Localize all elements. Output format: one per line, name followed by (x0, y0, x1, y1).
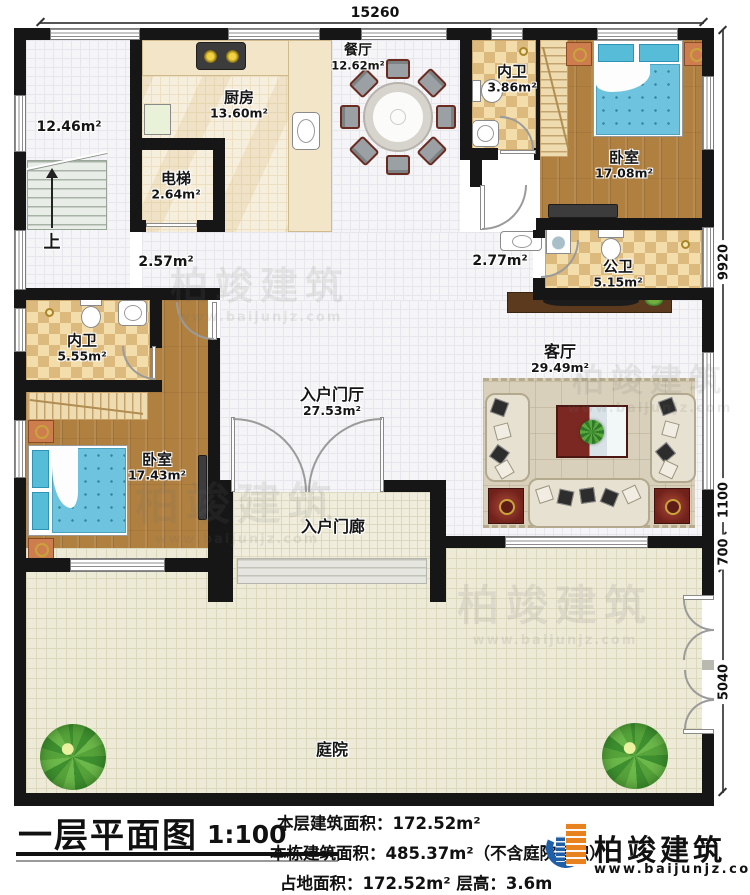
room-label-public-bath: 公卫 5.15m² (593, 259, 642, 290)
window (597, 28, 678, 40)
logo-building-icon (556, 836, 565, 862)
sofa-pillow (557, 489, 575, 507)
bath-sink-icon (472, 120, 499, 147)
side-table-decor (499, 499, 515, 515)
stair-arrow (51, 175, 53, 228)
room-name: 入户门厅 (300, 386, 364, 404)
sink-basin (297, 119, 315, 143)
area-info-line1: 本层建筑面积：172.52m² (277, 810, 481, 834)
window (702, 352, 714, 490)
dimension-right-value: 1100 (717, 478, 732, 522)
room-name: 公卫 (593, 259, 642, 276)
burner-icon (226, 50, 239, 63)
window (14, 230, 26, 290)
dimension-line-top (40, 22, 704, 24)
dining-chair (386, 59, 410, 79)
side-table-decor (665, 499, 681, 515)
room-label-bedroom1: 卧室 17.08m² (595, 150, 653, 181)
basin (477, 125, 494, 142)
room-label-ensuite2: 内卫 5.55m² (57, 333, 106, 364)
wall (536, 218, 702, 230)
basin (124, 305, 142, 321)
dimension-right-value: 5040 (717, 660, 732, 704)
wall (446, 536, 505, 548)
light-fixture-icon (519, 47, 528, 56)
wall (130, 40, 142, 232)
stair-up-label: 上 (44, 233, 61, 252)
wall (150, 300, 162, 348)
bed-pillow (598, 44, 634, 62)
room-name: 庭院 (316, 741, 348, 759)
room-label-porch: 入户门廊 (301, 518, 365, 536)
nightstand (28, 420, 54, 443)
wall (536, 40, 540, 158)
window (228, 28, 320, 40)
nightstand-decor (35, 425, 49, 439)
door-swing-arc (482, 185, 527, 230)
area-info-line3: 占地面积：172.52m² 层高：3.6m (280, 870, 552, 894)
room-name: 入户门廊 (301, 518, 365, 536)
nightstand (566, 42, 592, 66)
room-label-kitchen: 厨房 13.60m² (210, 90, 268, 121)
wall (702, 548, 714, 597)
room-area: 12.46m² (36, 120, 101, 136)
wall (14, 793, 714, 806)
window (14, 95, 26, 152)
kitchen-sink (292, 112, 320, 150)
room-name: 客厅 (531, 343, 589, 361)
wall (197, 220, 225, 232)
tv-panel-bedroom2 (198, 455, 207, 520)
room-area: 17.43m² (128, 468, 186, 482)
window (702, 227, 714, 288)
bed-pillow (32, 492, 49, 530)
door-leaf (500, 150, 536, 154)
window (14, 308, 26, 352)
window (50, 28, 140, 40)
hall-area-label: 2.57m² (138, 255, 193, 271)
nightstand-decor (573, 48, 587, 62)
room-name: 餐厅 (331, 44, 384, 60)
bed-pillow (639, 44, 679, 62)
room-name: 卧室 (128, 452, 186, 469)
wall (533, 288, 714, 300)
stair-arrow-head (46, 168, 58, 178)
tv-stand-bedroom1 (548, 204, 618, 218)
room-area: 2.77m² (472, 254, 527, 270)
sofa-pillow (579, 487, 596, 504)
room-label-living: 客厅 29.49m² (531, 343, 589, 375)
dimension-right-value: 9920 (717, 240, 732, 284)
dining-chair (386, 155, 410, 175)
window (702, 76, 714, 150)
dimension-tick (699, 17, 708, 26)
logo-site: www.baijunjz.com (594, 862, 750, 877)
room-label-foyer: 入户门厅 27.53m² (300, 386, 364, 418)
room-name: 厨房 (210, 90, 268, 107)
room-label-bedroom2: 卧室 17.43m² (128, 452, 186, 483)
room-area: 3.86m² (487, 80, 536, 94)
stove-icon (196, 42, 246, 70)
room-area: 12.62m² (331, 59, 384, 72)
elevator-door (146, 223, 197, 227)
hall-area-label: 2.77m² (472, 254, 527, 270)
room-area: 2.57m² (138, 255, 193, 271)
room-area: 13.60m² (210, 106, 268, 120)
bath-sink-icon (118, 300, 147, 326)
wardrobe-bedroom2 (27, 392, 148, 420)
light-fixture-icon (681, 240, 690, 249)
wall (26, 380, 162, 392)
room-area: 27.53m² (300, 404, 364, 418)
table-plant-icon (580, 420, 604, 444)
dining-chair (340, 105, 360, 129)
courtyard-floor (26, 548, 702, 793)
room-name: 内卫 (57, 333, 106, 350)
wall (208, 480, 233, 602)
window (491, 28, 523, 40)
wall (470, 157, 482, 187)
window (505, 536, 648, 548)
closet-rod (30, 399, 143, 415)
room-area: 2.64m² (151, 187, 200, 201)
room-label-elevator: 电梯 2.64m² (151, 171, 200, 202)
wall (382, 480, 446, 492)
wall (14, 558, 70, 572)
wall (533, 230, 545, 238)
gate-post (702, 660, 714, 670)
wall (130, 138, 225, 150)
staircase (27, 160, 107, 230)
bed-pillow (32, 450, 49, 488)
room-name: 内卫 (487, 64, 536, 81)
toilet-icon (472, 80, 481, 102)
room-area: 5.55m² (57, 349, 106, 363)
side-table (488, 488, 524, 524)
toilet-bowl-icon (81, 306, 101, 328)
porch-steps (237, 558, 427, 584)
room-area: 29.49m² (531, 361, 589, 375)
room-area: 5.15m² (593, 275, 642, 289)
dimension-right-value: 700 (717, 534, 732, 569)
tree-icon (40, 724, 106, 790)
wall (460, 40, 472, 160)
window (14, 420, 26, 478)
gate-leaf (683, 729, 714, 734)
window (70, 558, 165, 572)
dining-chair (436, 105, 456, 129)
side-table (654, 488, 690, 524)
burner-icon (204, 50, 217, 63)
wall (130, 220, 146, 232)
dining-table-center (390, 109, 406, 125)
wall (430, 492, 446, 602)
room-label-courtyard: 庭院 (316, 741, 348, 759)
tree-icon (602, 723, 668, 789)
basin (512, 235, 532, 248)
dimension-tick (718, 787, 727, 796)
dimension-top-value: 15260 (346, 5, 405, 21)
closet-bedroom1 (540, 38, 568, 157)
shower-fixture-icon (45, 308, 54, 317)
wall (14, 288, 220, 300)
room-name: 卧室 (595, 150, 653, 167)
window (361, 28, 447, 40)
logo-building-icon (566, 822, 586, 866)
plan-title: 一层平面图 (18, 808, 198, 857)
room-label-ensuite1: 内卫 3.86m² (487, 64, 536, 95)
room-area: 17.08m² (595, 166, 653, 180)
floor-plan-canvas: 12.46m² 上 厨房 13.60m² 电梯 2.64m² 餐厅 12.62m… (0, 0, 750, 895)
fridge (144, 104, 171, 135)
room-label-dining: 餐厅 12.62m² (331, 44, 384, 73)
room-name: 电梯 (151, 171, 200, 188)
nightstand-decor (35, 543, 49, 557)
up-text: 上 (44, 233, 61, 252)
room-label-stair-hall: 12.46m² (36, 120, 101, 136)
wall (648, 536, 702, 548)
